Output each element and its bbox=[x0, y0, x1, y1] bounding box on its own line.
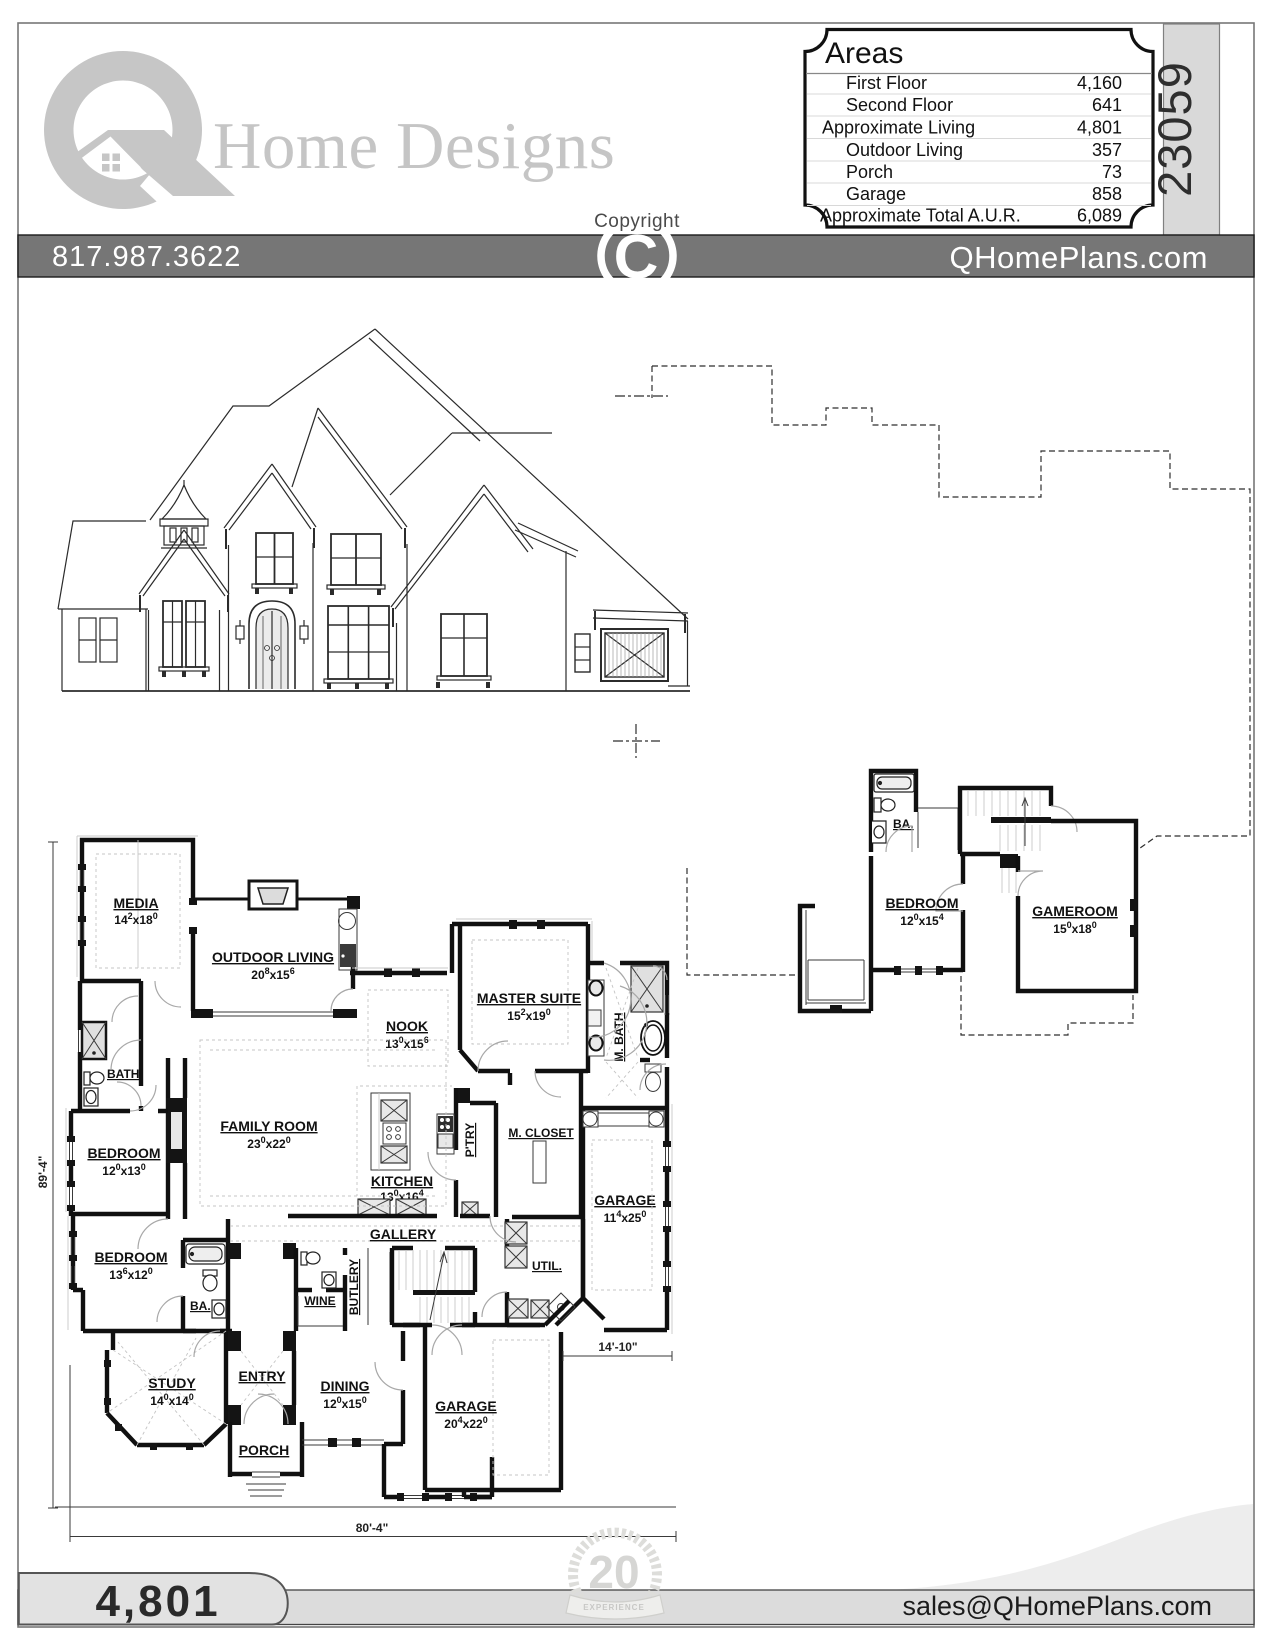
svg-text:M. CLOSET: M. CLOSET bbox=[508, 1126, 574, 1140]
svg-text:Porch: Porch bbox=[846, 162, 893, 182]
svg-text:BEDROOM: BEDROOM bbox=[94, 1249, 167, 1265]
svg-text:4,160: 4,160 bbox=[1077, 73, 1122, 93]
svg-text:114x250: 114x250 bbox=[604, 1209, 647, 1225]
svg-text:204x220: 204x220 bbox=[444, 1415, 487, 1431]
svg-text:150x180: 150x180 bbox=[1053, 920, 1096, 936]
svg-text:208x156: 208x156 bbox=[251, 966, 294, 982]
svg-text:GARAGE: GARAGE bbox=[594, 1192, 655, 1208]
svg-text:89'-4": 89'-4" bbox=[36, 1156, 50, 1189]
svg-text:PORCH: PORCH bbox=[239, 1442, 290, 1458]
svg-text:FAMILY ROOM: FAMILY ROOM bbox=[220, 1118, 317, 1134]
svg-text:120x130: 120x130 bbox=[102, 1162, 145, 1178]
svg-text:GAMEROOM: GAMEROOM bbox=[1032, 903, 1118, 919]
svg-text:BA.: BA. bbox=[190, 1299, 211, 1313]
svg-text:Home Designs: Home Designs bbox=[213, 109, 615, 183]
svg-text:STUDY: STUDY bbox=[148, 1375, 196, 1391]
svg-text:73: 73 bbox=[1102, 162, 1122, 182]
svg-text:Copyright: Copyright bbox=[594, 211, 680, 232]
svg-text:858: 858 bbox=[1092, 184, 1122, 204]
svg-text:NOOK: NOOK bbox=[386, 1018, 428, 1034]
svg-text:Approximate Living: Approximate Living bbox=[822, 118, 975, 138]
svg-text:4,801: 4,801 bbox=[95, 1577, 220, 1626]
svg-text:M. BATH: M. BATH bbox=[612, 1012, 626, 1061]
svg-text:152x190: 152x190 bbox=[507, 1007, 550, 1023]
svg-text:23059: 23059 bbox=[1148, 61, 1201, 197]
svg-text:GARAGE: GARAGE bbox=[435, 1398, 496, 1414]
svg-text:Areas: Areas bbox=[825, 37, 903, 70]
svg-text:MASTER SUITE: MASTER SUITE bbox=[477, 990, 581, 1006]
svg-text:DINING: DINING bbox=[321, 1378, 370, 1394]
svg-text:Approximate Total A.U.R.: Approximate Total A.U.R. bbox=[820, 206, 1021, 226]
svg-text:BEDROOM: BEDROOM bbox=[87, 1145, 160, 1161]
svg-text:Outdoor Living: Outdoor Living bbox=[846, 140, 963, 160]
svg-text:ENTRY: ENTRY bbox=[239, 1368, 287, 1384]
svg-text:357: 357 bbox=[1092, 140, 1122, 160]
svg-text:120x154: 120x154 bbox=[900, 912, 943, 928]
svg-text:Second Floor: Second Floor bbox=[846, 95, 953, 115]
svg-text:OUTDOOR LIVING: OUTDOOR LIVING bbox=[212, 949, 334, 965]
svg-text:140x140: 140x140 bbox=[150, 1392, 193, 1408]
svg-text:641: 641 bbox=[1092, 95, 1122, 115]
svg-text:P'TRY: P'TRY bbox=[463, 1123, 477, 1157]
svg-text:BEDROOM: BEDROOM bbox=[885, 895, 958, 911]
svg-text:80'-4": 80'-4" bbox=[356, 1521, 389, 1535]
svg-text:4,801: 4,801 bbox=[1077, 118, 1122, 138]
svg-text:20: 20 bbox=[588, 1546, 639, 1598]
svg-text:230x220: 230x220 bbox=[247, 1135, 290, 1151]
svg-text:sales@QHomePlans.com: sales@QHomePlans.com bbox=[902, 1591, 1212, 1621]
svg-text:142x180: 142x180 bbox=[114, 911, 157, 927]
svg-text:WINE: WINE bbox=[304, 1294, 335, 1308]
svg-text:BUTLERY: BUTLERY bbox=[347, 1259, 361, 1315]
svg-text:14'-10": 14'-10" bbox=[598, 1340, 637, 1354]
svg-text:First Floor: First Floor bbox=[846, 73, 927, 93]
svg-text:BATH: BATH bbox=[107, 1067, 139, 1081]
svg-text:130x156: 130x156 bbox=[385, 1035, 428, 1051]
svg-text:GALLERY: GALLERY bbox=[370, 1226, 437, 1242]
svg-text:EXPERIENCE: EXPERIENCE bbox=[583, 1603, 645, 1612]
svg-text:6,089: 6,089 bbox=[1077, 206, 1122, 226]
svg-text:BA.: BA. bbox=[893, 817, 914, 831]
svg-text:817.987.3622: 817.987.3622 bbox=[52, 241, 241, 273]
svg-text:KITCHEN: KITCHEN bbox=[371, 1173, 433, 1189]
svg-text:120x150: 120x150 bbox=[323, 1395, 366, 1411]
svg-text:Garage: Garage bbox=[846, 184, 906, 204]
svg-text:C: C bbox=[614, 223, 659, 292]
svg-text:136x120: 136x120 bbox=[109, 1266, 152, 1282]
svg-text:QHomePlans.com: QHomePlans.com bbox=[949, 240, 1208, 275]
svg-text:MEDIA: MEDIA bbox=[113, 895, 158, 911]
svg-text:UTIL.: UTIL. bbox=[532, 1259, 562, 1273]
